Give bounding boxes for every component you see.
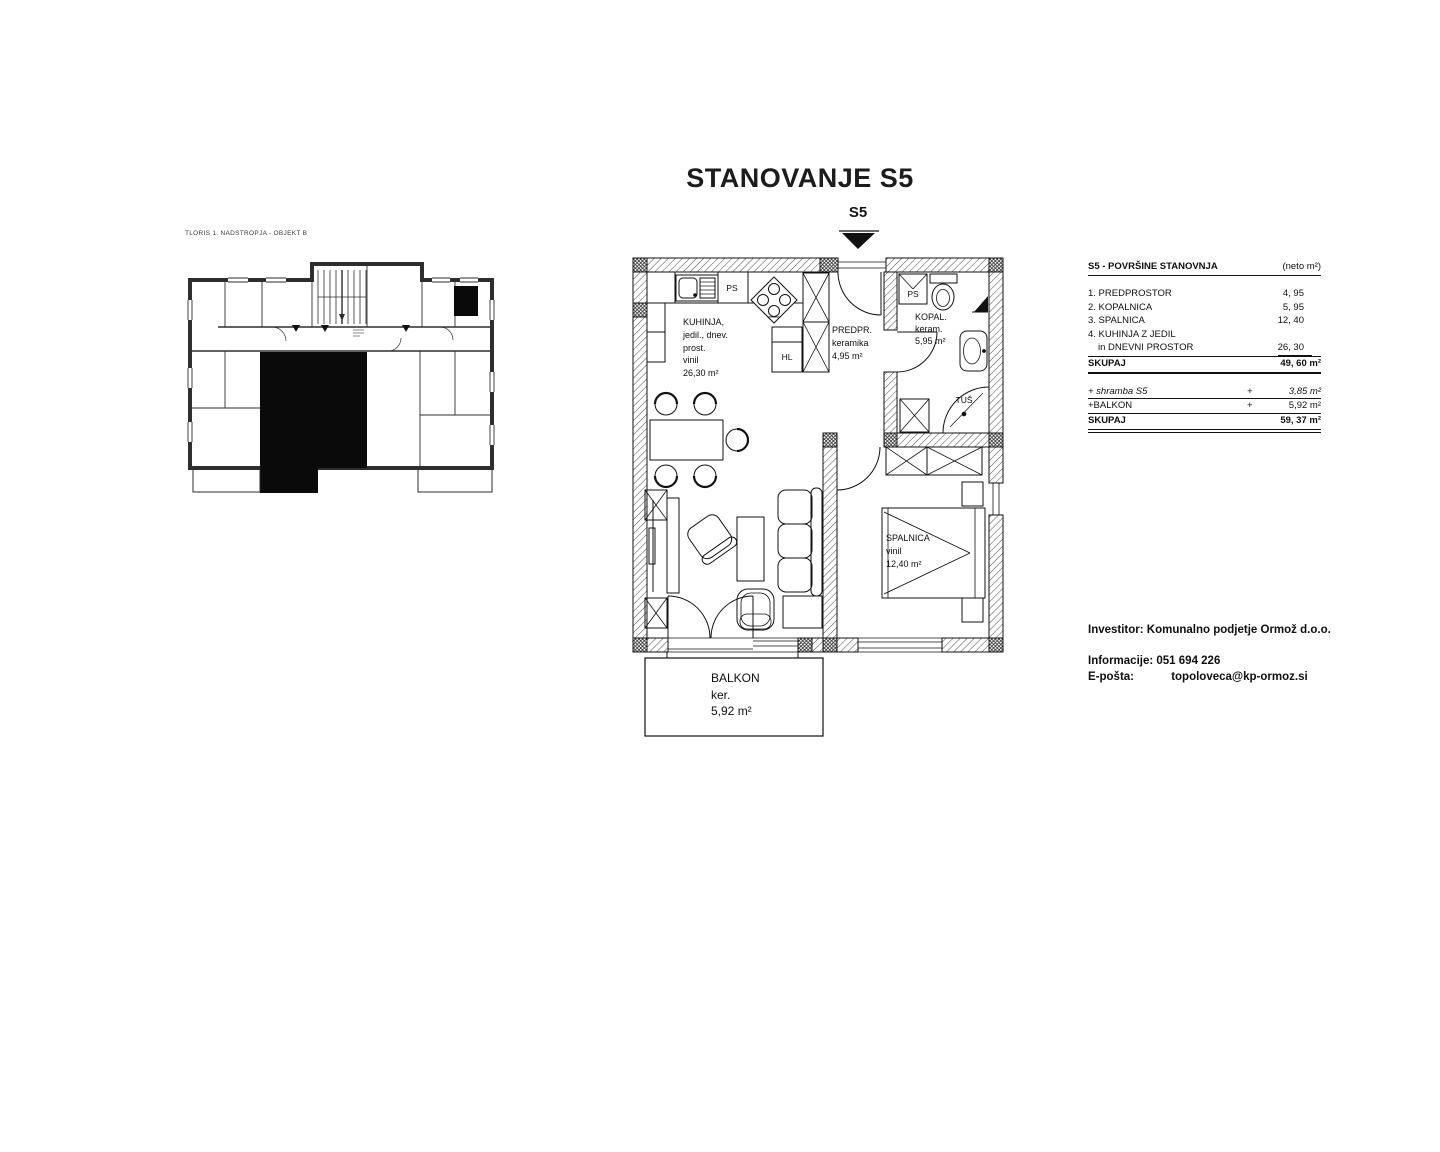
table-row: 3. SPALNICA 12, 40 xyxy=(1088,314,1321,328)
entrance-arrows xyxy=(292,325,410,332)
table-row: 4. KUHINJA Z JEDIL xyxy=(1088,328,1321,342)
stove xyxy=(751,277,797,323)
table-row: in DNEVNI PROSTOR 26, 30 xyxy=(1088,341,1321,357)
bedroom-wardrobes xyxy=(886,447,982,475)
shower xyxy=(943,387,989,433)
s5-marker-arrow xyxy=(839,231,879,249)
tv-unit xyxy=(645,490,679,628)
page-title: STANOVANJE S5 xyxy=(600,163,1000,194)
towel-radiator xyxy=(972,296,988,312)
side-table xyxy=(783,596,822,628)
nightstand xyxy=(962,482,983,506)
area-table-title: S5 - POVRŠINE STANOVNJA xyxy=(1088,261,1218,272)
hl-label: HL xyxy=(777,352,797,362)
area-table-unit-note: (neto m²) xyxy=(1282,261,1321,272)
sink xyxy=(676,275,718,301)
washbasin xyxy=(960,331,987,371)
area-table: S5 - POVRŠINE STANOVNJA (neto m²) 1. PRE… xyxy=(1088,261,1321,433)
plan-sheet: { "title": "STANOVANJE S5", "entrance_ma… xyxy=(0,0,1440,1152)
tus-label: TUŠ xyxy=(948,395,980,405)
kuhinja-label: KUHINJA, jedil., dnev. prost. vinil 26,3… xyxy=(683,316,728,380)
spalnica-label: SPALNICA vinil 12,40 m² xyxy=(886,532,930,570)
table-row: + shramba S5 + 3,85 m² xyxy=(1088,385,1321,400)
tall-cabinet xyxy=(803,273,829,372)
washing-machine xyxy=(900,399,929,432)
investor-name: Komunalno podjetje Ormož d.o.o. xyxy=(1147,624,1331,636)
table-row: 2. KOPALNICA 5, 95 xyxy=(1088,301,1321,315)
investor-label: Investitor: xyxy=(1088,624,1144,636)
nightstand xyxy=(962,598,983,622)
predprostor-label: PREDPR. keramika 4,95 m² xyxy=(832,324,872,362)
info-line: Informacije: 051 694 226 xyxy=(1088,653,1331,669)
armchair xyxy=(683,511,739,567)
highlighted-apartment xyxy=(260,286,478,493)
table-row: +BALKON + 5,92 m² xyxy=(1088,399,1321,414)
hl-cabinet xyxy=(772,327,802,372)
table-total-row: SKUPAJ 59, 37 m² xyxy=(1088,414,1321,433)
overview-plan-caption: TLORIS 1. NADSTROPJA - OBJEKT B xyxy=(185,230,307,237)
ps-bath-label: PS xyxy=(903,289,923,299)
overview-floor-plan xyxy=(185,264,497,493)
table-subtotal-row: SKUPAJ 49, 60 m² xyxy=(1088,357,1321,374)
coffee-table xyxy=(737,517,764,581)
phone-number: 051 694 226 xyxy=(1156,655,1220,667)
table-row: 1. PREDPROSTOR 4, 95 xyxy=(1088,287,1321,301)
contact-block: Investitor: Komunalno podjetje Ormož d.o… xyxy=(1088,622,1331,685)
area-table-header: S5 - POVRŠINE STANOVNJA (neto m²) xyxy=(1088,261,1321,276)
sofa xyxy=(778,488,822,596)
corridor-note xyxy=(353,330,364,336)
dining-table xyxy=(650,420,723,460)
toilet xyxy=(930,274,957,310)
email-address: topoloveca@kp-ormoz.si xyxy=(1171,671,1307,683)
lounge-chair xyxy=(737,589,774,630)
info-label: Informacije: xyxy=(1088,655,1153,667)
kopalnica-label: KOPAL. keram. 5,95 m² xyxy=(915,311,947,348)
email-line: E-pošta: topoloveca@kp-ormoz.si xyxy=(1088,669,1331,685)
table-extras: + shramba S5 + 3,85 m² +BALKON + 5,92 m²… xyxy=(1088,385,1321,433)
ps-kitchen-label: PS xyxy=(722,283,742,293)
balkon-label: BALKON ker. 5,92 m² xyxy=(711,670,760,720)
staircase xyxy=(318,270,366,324)
dining-chairs xyxy=(655,393,748,487)
email-label: E-pošta: xyxy=(1088,669,1168,685)
investor-line: Investitor: Komunalno podjetje Ormož d.o… xyxy=(1088,622,1331,638)
entrance-marker-label: S5 xyxy=(838,204,878,221)
